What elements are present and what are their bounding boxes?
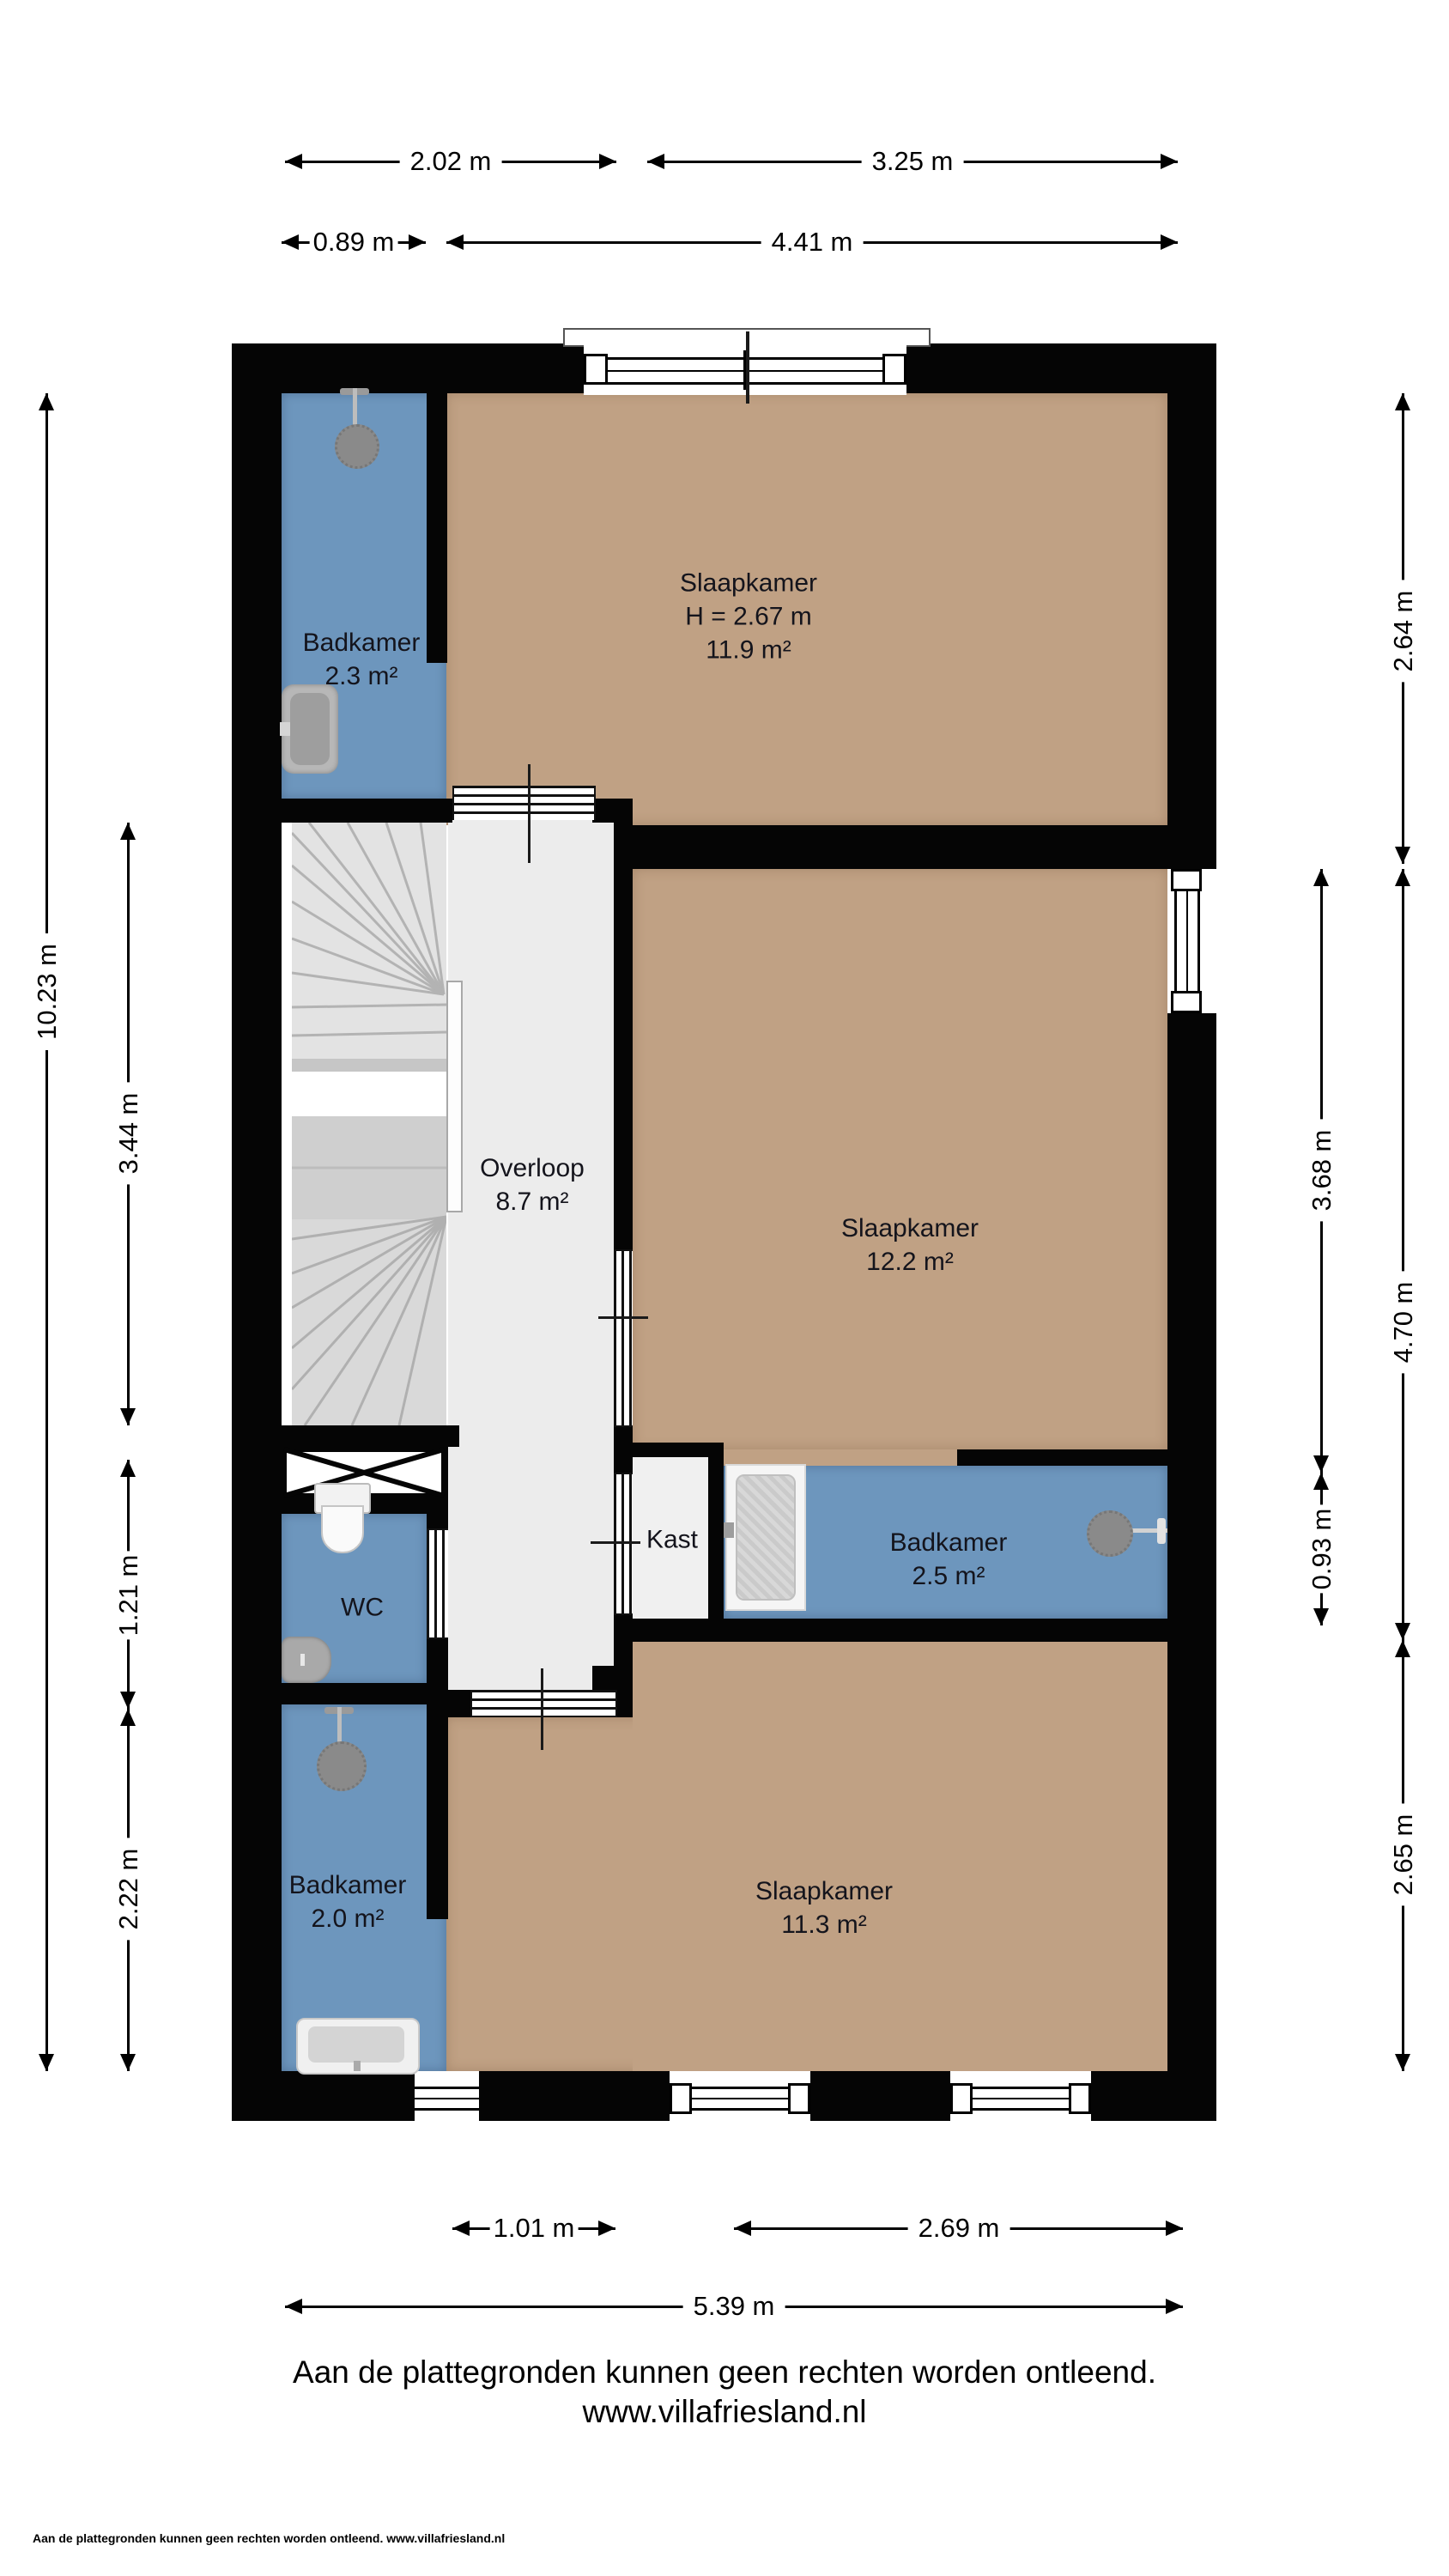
kast-leader-line (591, 1541, 640, 1544)
wall-bedroom-divider (633, 825, 1167, 869)
window-bottom-small-icon (415, 2071, 479, 2121)
door-leaf-icon (446, 981, 463, 1212)
dim-label-2.64: 2.64 m (1386, 580, 1421, 683)
footer-fineprint: Aan de plattegronden kunnen geen rechten… (33, 2531, 505, 2545)
door-slaapkamer-mid-icon (614, 1249, 633, 1427)
room-name: Slaapkamer (755, 1874, 893, 1908)
wall-wc-right-lower (427, 1636, 448, 1683)
dim-label-4.70: 4.70 m (1386, 1272, 1421, 1374)
room-name: Overloop (480, 1151, 585, 1185)
room-area: 2.5 m² (890, 1559, 1008, 1593)
room-area: 12.2 m² (841, 1245, 979, 1279)
room-slaapkamer-mid (633, 869, 1167, 1449)
toilet-icon (314, 1483, 367, 1555)
room-name: Badkamer (303, 626, 421, 659)
bathtub-icon (725, 1464, 806, 1611)
tick-door-top (528, 764, 530, 863)
label-badkamer-bottom: Badkamer 2.0 m² (289, 1868, 407, 1935)
dim-label-10.23: 10.23 m (30, 933, 64, 1050)
dim-label-4.41: 4.41 m (761, 225, 864, 259)
window-top-icon (584, 343, 906, 395)
stairs-icon (292, 823, 446, 1425)
wall-kast-right (708, 1443, 724, 1620)
wall-exterior-left (232, 343, 282, 2121)
door-slaapkamer-top-icon (452, 786, 596, 820)
room-area: 2.3 m² (303, 659, 421, 693)
label-badkamer-mid: Badkamer 2.5 m² (890, 1526, 1008, 1593)
dim-label-2.65: 2.65 m (1386, 1804, 1421, 1906)
room-area: 11.3 m² (755, 1908, 893, 1941)
sink-icon (282, 684, 338, 774)
footer-disclaimer: Aan de plattegronden kunnen geen rechten… (0, 2354, 1449, 2391)
wc-sink-icon (282, 1637, 331, 1683)
dim-label-5.39: 5.39 m (683, 2289, 785, 2324)
room-area: 8.7 m² (480, 1185, 585, 1218)
wall-overloop-right-upper (614, 799, 633, 1249)
room-name: Kast (646, 1523, 698, 1557)
dim-label-1.21: 1.21 m (112, 1552, 146, 1640)
floorplan-canvas: Slaapkamer H = 2.67 m 11.9 m² Badkamer 2… (0, 0, 1449, 2576)
room-name: Badkamer (890, 1526, 1008, 1559)
shower-rose3-icon (1087, 1510, 1133, 1557)
room-area: 2.0 m² (289, 1902, 407, 1935)
dim-arrow-4.70 (1402, 869, 1404, 1640)
door-wc-icon (427, 1528, 448, 1639)
window-right-icon (1167, 869, 1216, 1013)
wall-wc-bottom (282, 1683, 448, 1704)
room-area: 11.9 m² (680, 634, 817, 667)
sink2-icon (296, 2018, 420, 2075)
dim-label-2.02: 2.02 m (400, 144, 502, 179)
label-badkamer-top: Badkamer 2.3 m² (303, 626, 421, 693)
door-kast-icon (614, 1473, 633, 1615)
window-bottom-left-icon (670, 2071, 810, 2121)
label-kast: Kast (646, 1523, 698, 1557)
wall-badkamer-top-bottom (282, 799, 452, 823)
tick-door-bottom (541, 1668, 543, 1750)
label-slaapkamer-bottom: Slaapkamer 11.3 m² (755, 1874, 893, 1941)
wall-stairs-bottom (282, 1425, 459, 1447)
dim-arrow-10.23 (45, 393, 48, 2071)
label-overloop: Overloop 8.7 m² (480, 1151, 585, 1218)
window-bottom-right-icon (950, 2071, 1091, 2121)
shower-rose2-icon (317, 1741, 367, 1791)
room-height: H = 2.67 m (680, 600, 817, 634)
room-slaapkamer-bottom-right (633, 1642, 1167, 2071)
dim-label-0.89: 0.89 m (310, 225, 398, 259)
dim-label-3.68: 3.68 m (1305, 1120, 1339, 1222)
shower-pipe-icon (353, 388, 357, 428)
label-slaapkamer-mid: Slaapkamer 12.2 m² (841, 1212, 979, 1279)
door-slaapkamer-bottom-icon (470, 1690, 617, 1717)
wall-overloop-bottom-left (448, 1690, 470, 1717)
wall-exterior-right (1167, 343, 1216, 2121)
wall-badkamer-top-right (427, 393, 447, 663)
dim-label-0.93: 0.93 m (1305, 1505, 1339, 1594)
room-overloop (448, 799, 614, 1696)
dim-label-2.69: 2.69 m (908, 2211, 1010, 2245)
shower-flange-icon (1157, 1518, 1166, 1544)
dim-label-1.01: 1.01 m (490, 2211, 579, 2245)
label-wc: WC (341, 1591, 384, 1625)
footer-website: www.villafriesland.nl (0, 2394, 1449, 2430)
wall-overloop-right-mid (614, 1424, 633, 1473)
room-name: Slaapkamer (841, 1212, 979, 1245)
dim-label-3.44: 3.44 m (112, 1083, 146, 1185)
room-name: WC (341, 1591, 384, 1625)
dim-label-2.22: 2.22 m (112, 1838, 146, 1941)
shower-rose-icon (335, 424, 379, 469)
room-name: Badkamer (289, 1868, 407, 1902)
tick-door-mid (598, 1316, 648, 1319)
wall-badkamer-mid-bottom (614, 1619, 1167, 1642)
label-slaapkamer-top: Slaapkamer H = 2.67 m 11.9 m² (680, 567, 817, 667)
room-name: Slaapkamer (680, 567, 817, 600)
wall-badkamer-mid-top (957, 1449, 1167, 1466)
tick-window-top (746, 331, 749, 404)
wall-badkamer-bottom-right (427, 1704, 448, 1919)
dim-label-3.25: 3.25 m (862, 144, 964, 179)
